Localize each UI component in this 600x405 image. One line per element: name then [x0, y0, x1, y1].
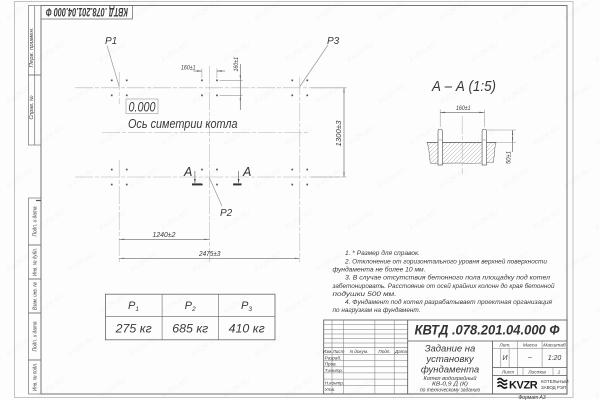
svg-text:Перв. примен.: Перв. примен.	[29, 28, 35, 68]
svg-text:160±1: 160±1	[456, 105, 471, 112]
svg-text:Ось симетрии котла: Ось симетрии котла	[128, 117, 238, 131]
svg-text:А – А (1:5): А – А (1:5)	[431, 79, 496, 95]
svg-text:160±1: 160±1	[181, 65, 196, 72]
svg-text:Формат А3: Формат А3	[518, 395, 546, 400]
svg-text:Р1: Р1	[105, 36, 117, 47]
svg-text:2: 2	[191, 306, 196, 313]
svg-text:2475±3: 2475±3	[198, 249, 221, 258]
svg-text:1:20: 1:20	[548, 355, 562, 362]
svg-text:КВТД .078.201.04.000 Ф: КВТД .078.201.04.000 Ф	[46, 5, 128, 17]
svg-text:Лист: Лист	[501, 370, 514, 376]
svg-text:N докум.: N докум.	[350, 349, 369, 354]
svg-text:по нагрузкам на фундамент.: по нагрузкам на фундамент.	[333, 306, 421, 314]
svg-text:Листов: Листов	[527, 370, 546, 376]
svg-text:КОТЕЛЬНЫЙ: КОТЕЛЬНЫЙ	[541, 379, 569, 384]
svg-text:ЗАВОД РЭП: ЗАВОД РЭП	[541, 385, 566, 390]
svg-text:Инв. № дубл.: Инв. № дубл.	[32, 248, 38, 276]
svg-text:Пров.: Пров.	[325, 362, 337, 367]
svg-text:Р3: Р3	[327, 36, 340, 47]
svg-text:275 кг: 275 кг	[115, 322, 152, 336]
svg-text:Масштаб: Масштаб	[543, 343, 566, 349]
svg-text:410 кг: 410 кг	[229, 322, 265, 336]
svg-text:1300±3: 1300±3	[334, 120, 343, 147]
svg-text:Т.контр.: Т.контр.	[325, 368, 344, 373]
svg-text:А: А	[242, 165, 251, 179]
svg-text:50±1: 50±1	[506, 151, 513, 164]
svg-text:160±1: 160±1	[233, 57, 240, 72]
svg-text:2. Отклонение от горизонтально: 2. Отклонение от горизонтального уровня …	[344, 257, 547, 265]
svg-text:Задание на: Задание на	[425, 344, 476, 355]
svg-text:фундамента не более 10 мм.: фундамента не более 10 мм.	[333, 266, 426, 274]
svg-text:Изм.Лист: Изм.Лист	[323, 349, 345, 354]
svg-text:Лит.: Лит.	[498, 343, 510, 349]
svg-text:Р2: Р2	[220, 208, 233, 219]
svg-text:забетонировать. Расстояние от: забетонировать. Расстояние от осей крайн…	[332, 282, 555, 290]
svg-text:подушки 500 мм.: подушки 500 мм.	[333, 290, 397, 298]
svg-text:1: 1	[135, 306, 139, 313]
svg-text:Взам. инв. №: Взам. инв. №	[32, 281, 38, 310]
svg-text:по техническому заданию: по техническому заданию	[420, 387, 480, 393]
svg-text:фундамента: фундамента	[421, 365, 479, 376]
svg-text:Подп.: Подп.	[378, 349, 390, 354]
svg-text:4. Фундамент под котел разраба: 4. Фундамент под котел разрабатывает про…	[345, 298, 553, 306]
svg-text:0.000: 0.000	[129, 100, 156, 115]
svg-text:685 кг: 685 кг	[172, 322, 208, 336]
svg-text:Инв. № подл.: Инв. № подл.	[32, 363, 38, 391]
svg-text:Н.контр.: Н.контр.	[325, 381, 344, 386]
svg-text:Подп. и дата: Подп. и дата	[32, 321, 38, 351]
svg-text:Разраб.: Разраб.	[325, 356, 342, 361]
svg-text:1: 1	[558, 370, 561, 376]
svg-text:3. В случае отсутствия бетонно: 3. В случае отсутствия бетонного пола пл…	[345, 274, 550, 282]
svg-text:–: –	[527, 354, 532, 361]
svg-text:1240±2: 1240±2	[153, 230, 177, 239]
svg-text:Подп. и дата: Подп. и дата	[32, 206, 38, 236]
svg-text:1. * Размер для справок.: 1. * Размер для справок.	[345, 249, 420, 257]
svg-text:Утв.: Утв.	[325, 387, 335, 392]
svg-text:А: А	[183, 165, 192, 179]
svg-text:KVZR: KVZR	[509, 380, 538, 392]
svg-text:КВТД .078.201.04.000 Ф: КВТД .078.201.04.000 Ф	[415, 321, 560, 337]
svg-text:Справ. №: Справ. №	[29, 95, 35, 120]
svg-text:Масса: Масса	[523, 343, 538, 349]
svg-text:3: 3	[248, 306, 252, 313]
svg-text:Дата: Дата	[394, 349, 408, 354]
svg-text:установку: установку	[425, 354, 475, 365]
